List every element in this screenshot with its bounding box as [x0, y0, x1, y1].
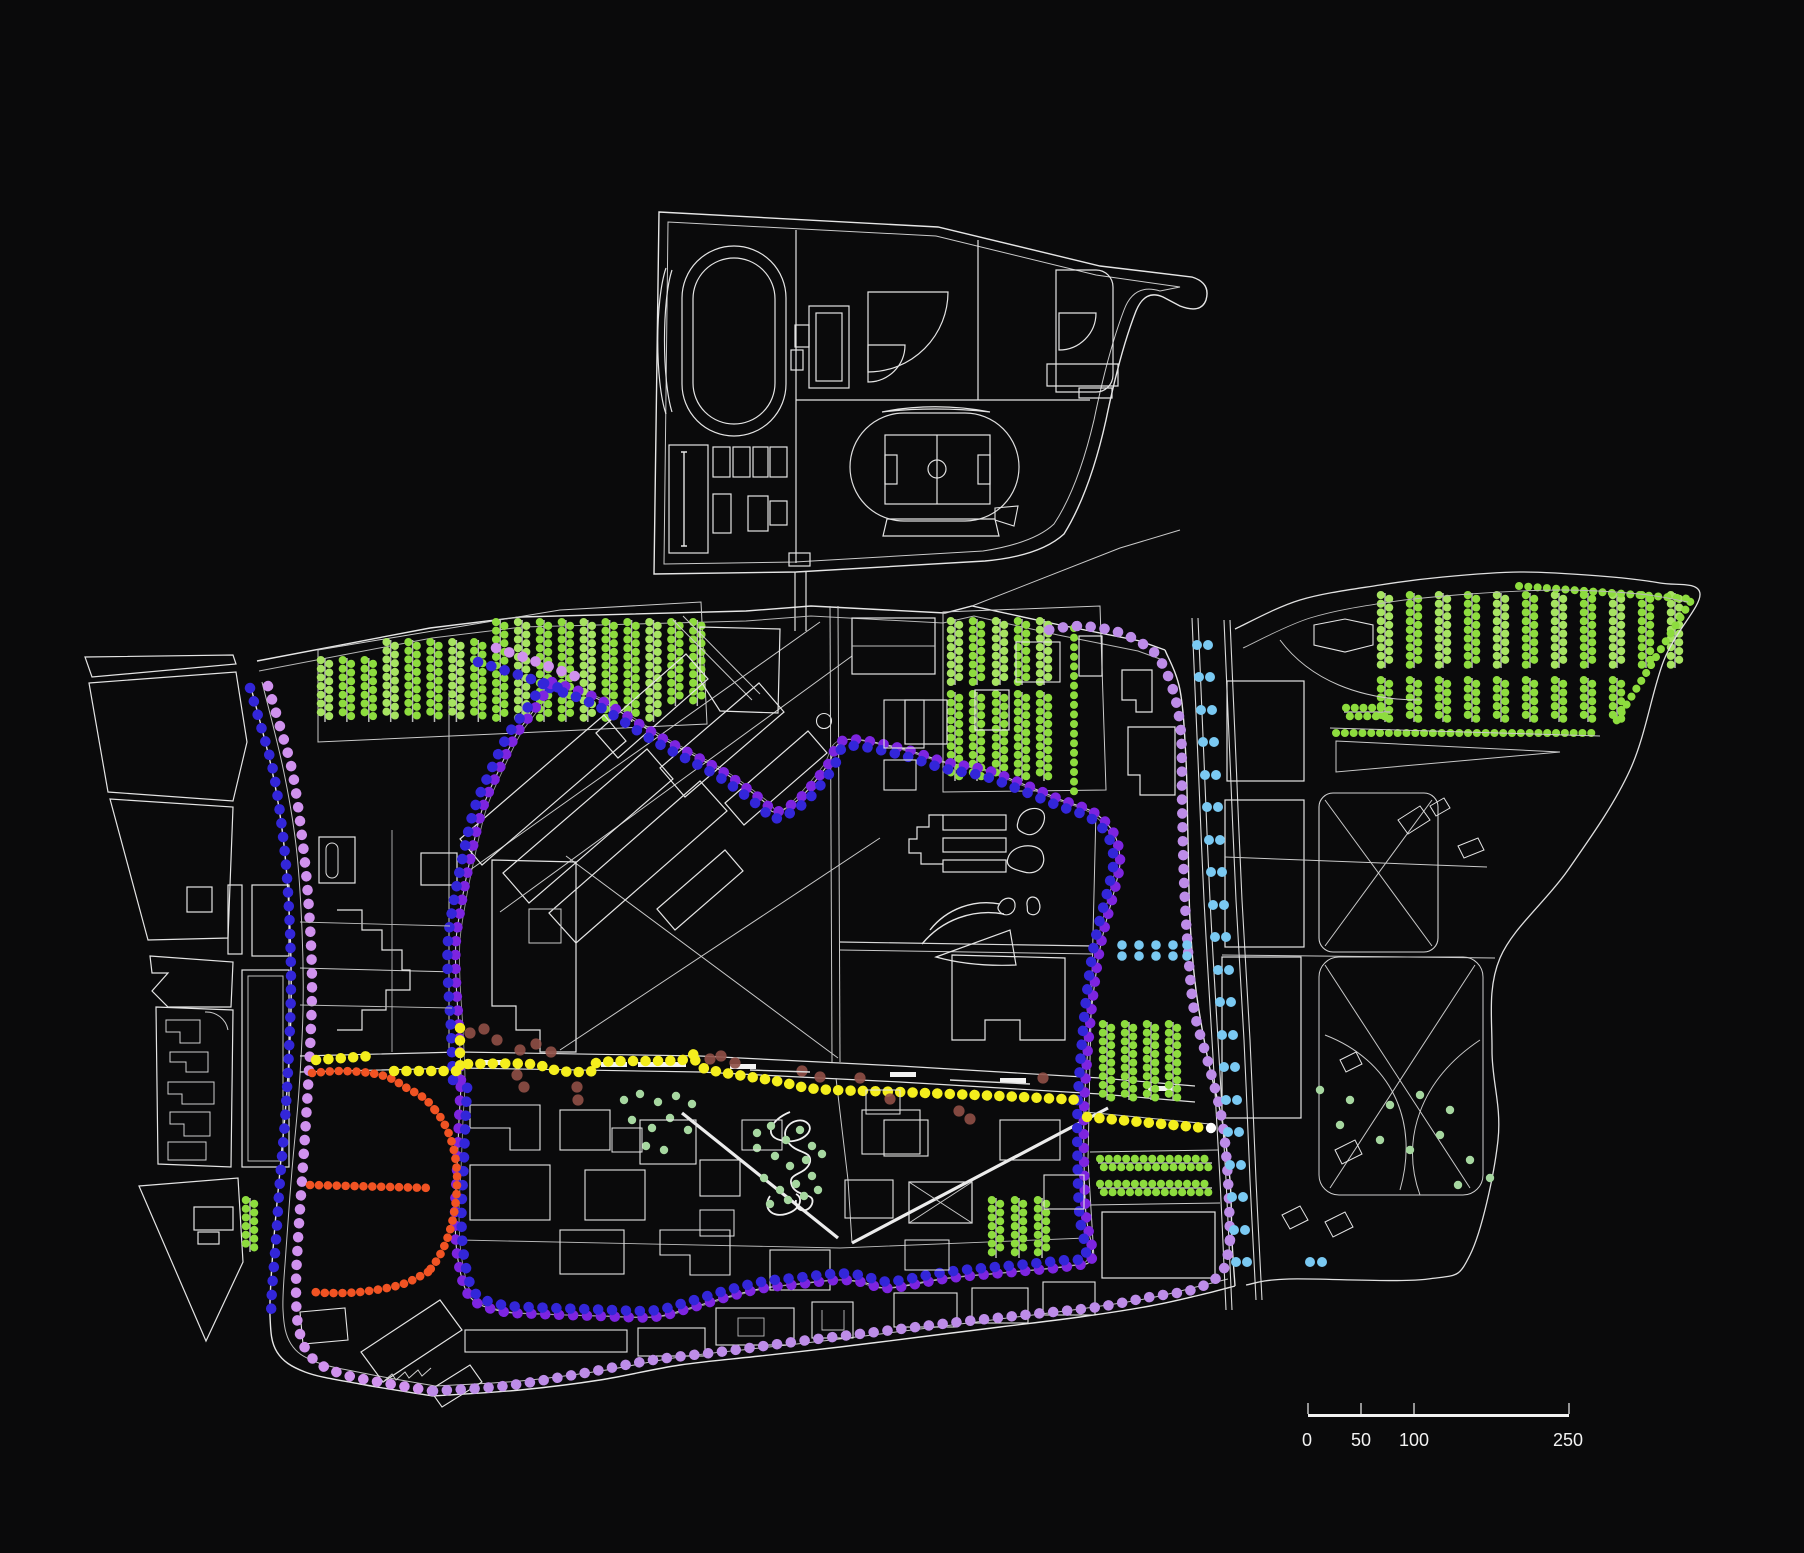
- svg-text:250: 250: [1553, 1430, 1583, 1450]
- svg-text:100: 100: [1399, 1430, 1429, 1450]
- svg-text:0: 0: [1302, 1430, 1312, 1450]
- svg-text:50: 50: [1351, 1430, 1371, 1450]
